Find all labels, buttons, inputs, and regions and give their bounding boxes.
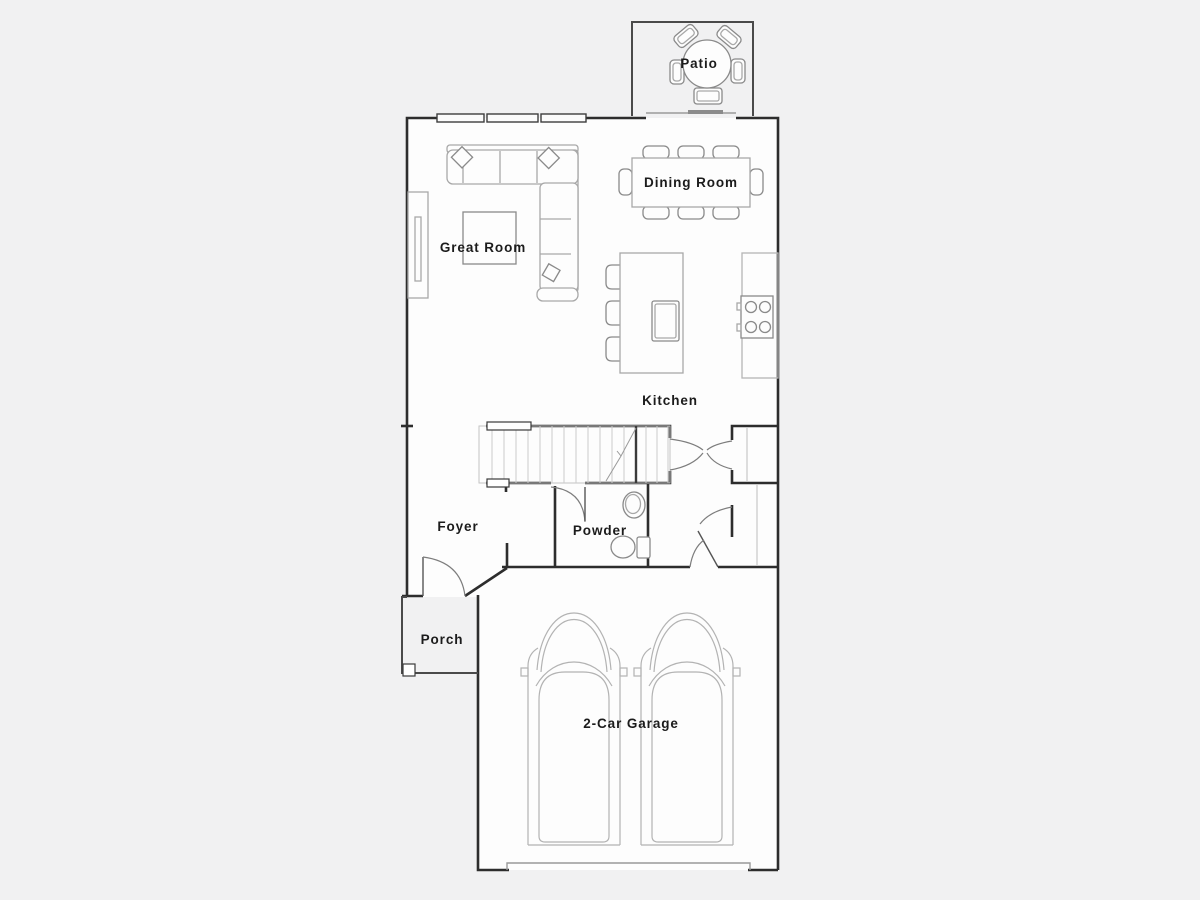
windows [437, 114, 586, 122]
coffee-table [463, 212, 516, 264]
sliding-door [646, 112, 736, 113]
room-label-powder: Powder [573, 523, 627, 538]
room-label-kitchen: Kitchen [642, 393, 698, 408]
room-label-garage: 2-Car Garage [583, 716, 679, 731]
floor-plan-page: Patio Dining Room Great Room Kitchen Foy… [0, 0, 1200, 900]
room-label-patio: Patio [680, 56, 718, 71]
room-label-great-room: Great Room [440, 240, 526, 255]
porch-post [403, 664, 415, 676]
sofa-arm [537, 288, 578, 301]
island-sink [652, 301, 679, 341]
kitchen-island [606, 253, 683, 373]
room-label-porch: Porch [421, 632, 464, 647]
powder-sink [623, 492, 645, 518]
patio-chair [694, 88, 722, 104]
floor-plan-drawing: Patio Dining Room Great Room Kitchen Foy… [0, 0, 1200, 900]
toilet [611, 536, 650, 558]
patio-chair [731, 59, 745, 83]
room-label-dining-room: Dining Room [644, 175, 738, 190]
bar-stools [606, 265, 621, 361]
stair-landing-cap [487, 422, 531, 430]
cooktop [737, 296, 773, 338]
stair-newel-cap [487, 479, 509, 487]
room-label-foyer: Foyer [437, 519, 478, 534]
